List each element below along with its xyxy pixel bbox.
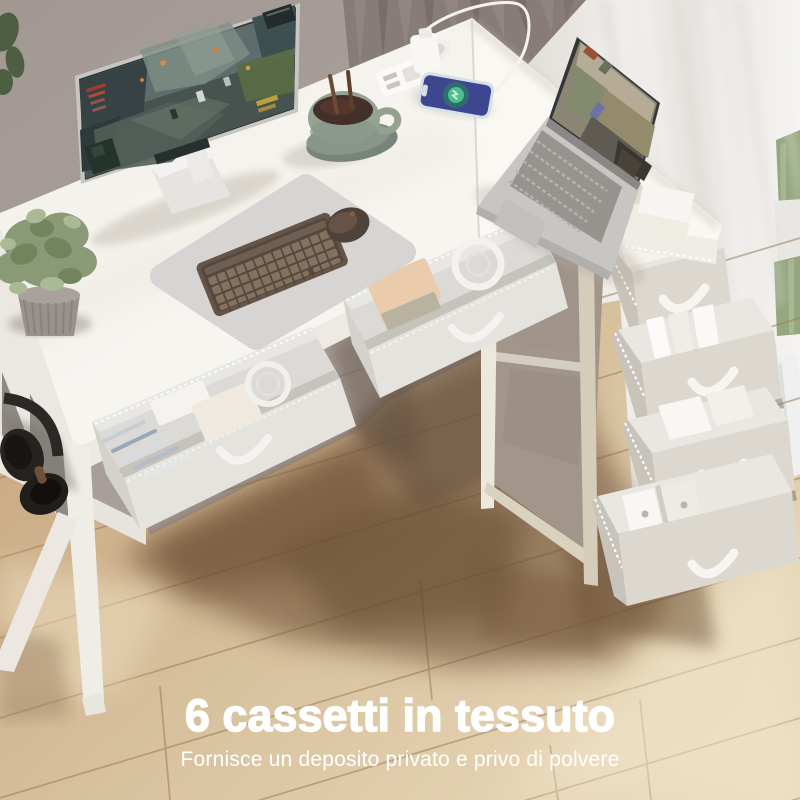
- svg-text:Fornisce un deposito privato e: Fornisce un deposito privato e privo di …: [181, 748, 620, 771]
- svg-text:6 cassetti in tessuto: 6 cassetti in tessuto: [185, 690, 615, 741]
